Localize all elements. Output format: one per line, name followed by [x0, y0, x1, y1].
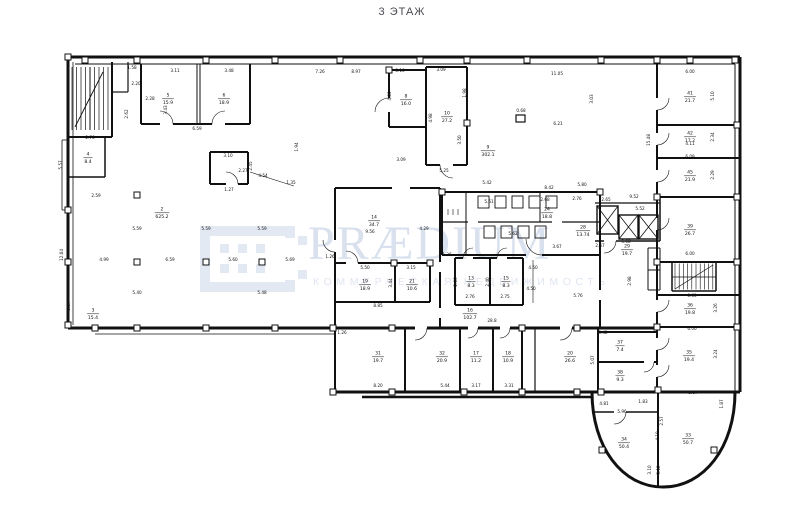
svg-text:18: 18	[505, 351, 511, 357]
svg-text:8: 8	[405, 94, 408, 100]
svg-text:50.4: 50.4	[619, 444, 629, 450]
svg-text:3.44: 3.44	[388, 278, 393, 288]
svg-text:4: 4	[87, 152, 90, 158]
svg-text:5.52: 5.52	[635, 206, 645, 211]
column-marker	[732, 57, 738, 63]
svg-text:6.59: 6.59	[192, 126, 202, 131]
svg-text:2.06: 2.06	[453, 277, 458, 287]
svg-text:2.59: 2.59	[91, 193, 101, 198]
column-marker	[134, 259, 140, 265]
svg-text:28: 28	[580, 225, 586, 231]
wc-fixture-icon	[518, 226, 529, 238]
wc-fixture-icon	[484, 226, 495, 238]
column-marker	[687, 57, 693, 63]
svg-text:1.26: 1.26	[337, 330, 347, 335]
door-arc-icon	[657, 218, 669, 230]
column-marker	[391, 260, 397, 266]
svg-text:5.59: 5.59	[132, 226, 142, 231]
column-marker	[711, 447, 717, 453]
column-marker	[574, 325, 580, 331]
column-marker	[427, 260, 433, 266]
column-marker	[461, 389, 467, 395]
svg-text:5.61: 5.61	[484, 199, 494, 204]
column-marker	[654, 324, 660, 330]
column-marker	[389, 325, 395, 331]
svg-text:16: 16	[467, 308, 473, 314]
svg-text:8.4: 8.4	[84, 159, 91, 165]
door-arc-icon	[657, 98, 669, 110]
svg-text:17: 17	[473, 351, 479, 357]
column-marker	[734, 259, 740, 265]
svg-text:9.56: 9.56	[365, 229, 375, 234]
svg-text:3: 3	[92, 308, 95, 314]
svg-text:3.09: 3.09	[396, 157, 406, 162]
svg-text:5.57: 5.57	[58, 160, 63, 170]
svg-text:6.21: 6.21	[553, 121, 563, 126]
door-arc-icon	[526, 239, 542, 255]
svg-text:39: 39	[687, 224, 693, 230]
svg-text:3.50: 3.50	[457, 135, 462, 145]
column-marker	[464, 57, 470, 63]
svg-text:6.09: 6.09	[685, 154, 695, 159]
svg-text:19: 19	[362, 279, 368, 285]
svg-text:3.09: 3.09	[436, 67, 446, 72]
svg-text:50.7: 50.7	[683, 440, 693, 446]
svg-text:2.76: 2.76	[85, 135, 95, 140]
svg-text:102.7: 102.7	[463, 315, 476, 321]
svg-text:1.98: 1.98	[462, 88, 467, 98]
svg-text:3.15: 3.15	[406, 265, 416, 270]
svg-text:21.9: 21.9	[685, 177, 695, 183]
svg-text:2.75: 2.75	[500, 294, 510, 299]
column-marker	[386, 67, 392, 73]
svg-text:34: 34	[621, 437, 627, 443]
svg-text:2.67: 2.67	[595, 243, 605, 248]
svg-text:3.24: 3.24	[713, 349, 718, 359]
svg-text:4.99: 4.99	[99, 257, 109, 262]
column-marker	[134, 192, 140, 198]
svg-text:6.00: 6.00	[687, 326, 697, 331]
svg-text:2.20: 2.20	[131, 81, 141, 86]
svg-text:15: 15	[503, 276, 509, 282]
column-marker	[519, 389, 525, 395]
column-marker	[65, 259, 71, 265]
column-marker	[330, 325, 336, 331]
svg-text:3.03: 3.03	[589, 94, 594, 104]
svg-text:2.27: 2.27	[238, 168, 248, 173]
svg-text:29: 29	[624, 244, 630, 250]
door-arc-icon	[657, 365, 669, 377]
door-arc-icon	[463, 248, 473, 258]
column-marker	[330, 389, 336, 395]
svg-text:19.7: 19.7	[373, 358, 383, 364]
svg-text:5.76: 5.76	[573, 293, 583, 298]
floor-plan: 3.113.487.268.975.103.0911.056.001.582.2…	[0, 0, 804, 516]
walls-layer	[62, 57, 740, 487]
svg-text:1.35: 1.35	[286, 180, 296, 185]
svg-text:10.6: 10.6	[407, 286, 417, 292]
door-arc-icon	[657, 300, 669, 312]
column-marker	[597, 189, 603, 195]
svg-text:3.26: 3.26	[713, 303, 718, 313]
column-marker	[524, 57, 530, 63]
svg-text:2.76: 2.76	[465, 294, 475, 299]
column-marker	[134, 57, 140, 63]
column-marker	[203, 325, 209, 331]
svg-text:0.68: 0.68	[516, 108, 526, 113]
column-marker	[598, 57, 604, 63]
svg-text:5.42: 5.42	[482, 180, 492, 185]
svg-text:5.37: 5.37	[688, 390, 698, 395]
svg-text:27.2: 27.2	[442, 118, 452, 124]
svg-text:6.00: 6.00	[685, 251, 695, 256]
svg-text:12.04: 12.04	[59, 249, 64, 261]
svg-text:33: 33	[685, 433, 691, 439]
svg-text:2.29: 2.29	[710, 170, 715, 180]
svg-text:2.34: 2.34	[710, 132, 715, 142]
svg-text:4.81: 4.81	[599, 401, 609, 406]
svg-text:45: 45	[687, 170, 693, 176]
svg-text:5.59: 5.59	[257, 226, 267, 231]
svg-text:19.8: 19.8	[685, 310, 695, 316]
door-arc-icon	[346, 251, 358, 263]
svg-text:8.97: 8.97	[351, 69, 361, 74]
svg-text:5.10: 5.10	[710, 91, 715, 101]
column-marker	[464, 120, 470, 126]
svg-text:2.68: 2.68	[540, 197, 550, 202]
door-arc-icon	[657, 133, 669, 145]
column-marker	[259, 259, 265, 265]
svg-text:2.57: 2.57	[659, 416, 664, 426]
svg-text:2.28: 2.28	[145, 96, 155, 101]
svg-text:2.62: 2.62	[124, 109, 129, 119]
column-marker	[65, 207, 71, 213]
column-marker	[272, 57, 278, 63]
svg-text:2: 2	[161, 207, 164, 213]
svg-text:16.0: 16.0	[401, 101, 411, 107]
svg-text:5.69: 5.69	[285, 257, 295, 262]
column-marker	[654, 194, 660, 200]
svg-text:13: 13	[468, 276, 474, 282]
svg-text:24: 24	[544, 207, 550, 213]
door-arc-icon	[226, 172, 238, 184]
column-marker	[65, 54, 71, 60]
door-arc-icon	[657, 170, 669, 182]
svg-text:5.25: 5.25	[439, 168, 449, 173]
svg-text:28.8: 28.8	[487, 318, 497, 323]
svg-text:8.20: 8.20	[373, 383, 383, 388]
svg-text:38: 38	[617, 370, 623, 376]
svg-text:5.07: 5.07	[590, 355, 595, 365]
column-marker	[734, 324, 740, 330]
svg-text:1.87: 1.87	[719, 399, 724, 409]
svg-text:8.85: 8.85	[373, 303, 383, 308]
svg-text:5.48: 5.48	[257, 290, 267, 295]
svg-text:2.76: 2.76	[572, 196, 582, 201]
svg-text:3.37: 3.37	[66, 301, 71, 311]
svg-text:8.3: 8.3	[467, 283, 474, 289]
column-marker	[519, 325, 525, 331]
door-arc-icon	[323, 240, 335, 252]
svg-text:5.44: 5.44	[440, 383, 450, 388]
svg-text:6.00: 6.00	[685, 69, 695, 74]
svg-text:6.60: 6.60	[687, 293, 697, 298]
svg-text:21: 21	[409, 279, 415, 285]
svg-text:37: 37	[617, 340, 623, 346]
svg-text:13.74: 13.74	[576, 232, 589, 238]
svg-text:3.31: 3.31	[504, 383, 514, 388]
svg-text:5.62: 5.62	[508, 231, 518, 236]
svg-text:2.40: 2.40	[485, 277, 490, 287]
svg-text:11.05: 11.05	[551, 71, 563, 76]
svg-text:6: 6	[223, 93, 226, 99]
svg-text:9.3: 9.3	[616, 377, 623, 383]
wc-fixture-icon	[535, 226, 546, 238]
svg-text:4.19: 4.19	[655, 431, 660, 441]
svg-text:2.45: 2.45	[248, 161, 253, 171]
column-marker	[272, 325, 278, 331]
svg-text:5.40: 5.40	[132, 290, 142, 295]
svg-text:35: 35	[686, 350, 692, 356]
svg-text:5.96: 5.96	[617, 409, 627, 414]
svg-text:26.7: 26.7	[685, 231, 695, 237]
column-marker	[337, 57, 343, 63]
svg-text:1.26: 1.26	[442, 252, 452, 257]
svg-text:1.27: 1.27	[224, 187, 234, 192]
svg-text:15.9: 15.9	[163, 100, 173, 106]
svg-text:3.67: 3.67	[552, 244, 562, 249]
svg-text:3.10: 3.10	[647, 465, 652, 475]
door-arc-icon	[212, 111, 225, 124]
svg-text:19.7: 19.7	[622, 251, 632, 257]
shaft-marker-icon	[516, 115, 525, 122]
svg-text:4.50: 4.50	[528, 265, 538, 270]
column-marker	[82, 57, 88, 63]
svg-text:15.48: 15.48	[646, 134, 651, 146]
door-arc-icon	[657, 338, 669, 350]
column-marker	[92, 325, 98, 331]
svg-text:17.2: 17.2	[685, 138, 695, 144]
svg-text:31: 31	[375, 351, 381, 357]
svg-text:5.42: 5.42	[598, 330, 608, 335]
column-marker	[574, 389, 580, 395]
svg-text:4.85: 4.85	[387, 91, 392, 101]
svg-text:18.9: 18.9	[219, 100, 229, 106]
column-marker	[439, 189, 445, 195]
wc-fixture-icon	[495, 196, 506, 208]
svg-text:3.43: 3.43	[163, 105, 168, 115]
column-marker	[134, 325, 140, 331]
svg-text:5.68: 5.68	[621, 239, 631, 244]
svg-text:5.60: 5.60	[228, 257, 238, 262]
svg-text:36: 36	[687, 303, 693, 309]
svg-text:4.54: 4.54	[258, 173, 268, 178]
svg-text:7.4: 7.4	[616, 347, 623, 353]
svg-text:2.65: 2.65	[601, 197, 611, 202]
column-marker	[417, 57, 423, 63]
column-marker	[654, 57, 660, 63]
svg-text:4.50: 4.50	[526, 286, 536, 291]
floor-plan-page: 3 ЭТАЖ PRÆDIUM КОММЕРЧЕСКАЯ НЕДВИЖИМОСТЬ…	[0, 0, 804, 516]
svg-text:1.94: 1.94	[294, 142, 299, 152]
svg-text:3.48: 3.48	[224, 68, 234, 73]
svg-text:5.50: 5.50	[360, 265, 370, 270]
svg-text:9: 9	[487, 145, 490, 151]
svg-text:14: 14	[371, 215, 377, 221]
fixtures-layer	[478, 115, 658, 239]
svg-text:3.11: 3.11	[170, 68, 180, 73]
svg-text:3.10: 3.10	[223, 153, 233, 158]
svg-text:15.4: 15.4	[88, 315, 98, 321]
column-marker	[655, 387, 661, 393]
svg-text:42: 42	[687, 131, 693, 137]
svg-text:4.29: 4.29	[419, 226, 429, 231]
svg-text:1.58: 1.58	[127, 65, 137, 70]
svg-text:5.10: 5.10	[395, 68, 405, 73]
svg-text:4.98: 4.98	[428, 113, 433, 123]
svg-text:20: 20	[567, 351, 573, 357]
column-marker	[203, 57, 209, 63]
svg-text:8.42: 8.42	[544, 185, 554, 190]
svg-text:41: 41	[687, 91, 693, 97]
column-marker	[599, 447, 605, 453]
svg-text:625.2: 625.2	[155, 214, 168, 220]
svg-text:3.17: 3.17	[471, 383, 481, 388]
door-arc-icon	[497, 248, 507, 258]
svg-text:1.83: 1.83	[638, 399, 648, 404]
svg-text:1.26: 1.26	[325, 254, 335, 259]
svg-text:32: 32	[439, 351, 445, 357]
svg-text:10.9: 10.9	[503, 358, 513, 364]
svg-text:9.52: 9.52	[629, 194, 639, 199]
column-marker	[65, 322, 71, 328]
column-marker	[389, 389, 395, 395]
svg-text:302.1: 302.1	[481, 152, 494, 158]
svg-text:3.12: 3.12	[656, 465, 661, 475]
svg-text:21.7: 21.7	[685, 98, 695, 104]
column-marker	[598, 389, 604, 395]
wc-fixture-icon	[512, 196, 523, 208]
wc-fixture-icon	[529, 196, 540, 208]
svg-text:19.4: 19.4	[684, 357, 694, 363]
column-marker	[203, 259, 209, 265]
svg-text:34.7: 34.7	[369, 222, 379, 228]
svg-text:10: 10	[444, 111, 450, 117]
svg-text:2.98: 2.98	[627, 276, 632, 286]
svg-text:18.9: 18.9	[360, 286, 370, 292]
column-marker	[654, 259, 660, 265]
column-marker	[734, 194, 740, 200]
svg-text:8.3: 8.3	[502, 283, 509, 289]
svg-text:26.6: 26.6	[565, 358, 575, 364]
svg-text:18.8: 18.8	[542, 214, 552, 220]
svg-text:5.80: 5.80	[577, 182, 587, 187]
svg-text:7.26: 7.26	[315, 69, 325, 74]
svg-text:5: 5	[167, 93, 170, 99]
svg-text:6.59: 6.59	[165, 257, 175, 262]
svg-text:5.59: 5.59	[201, 226, 211, 231]
column-marker	[734, 122, 740, 128]
svg-text:20.9: 20.9	[437, 358, 447, 364]
svg-text:11.2: 11.2	[471, 358, 481, 364]
